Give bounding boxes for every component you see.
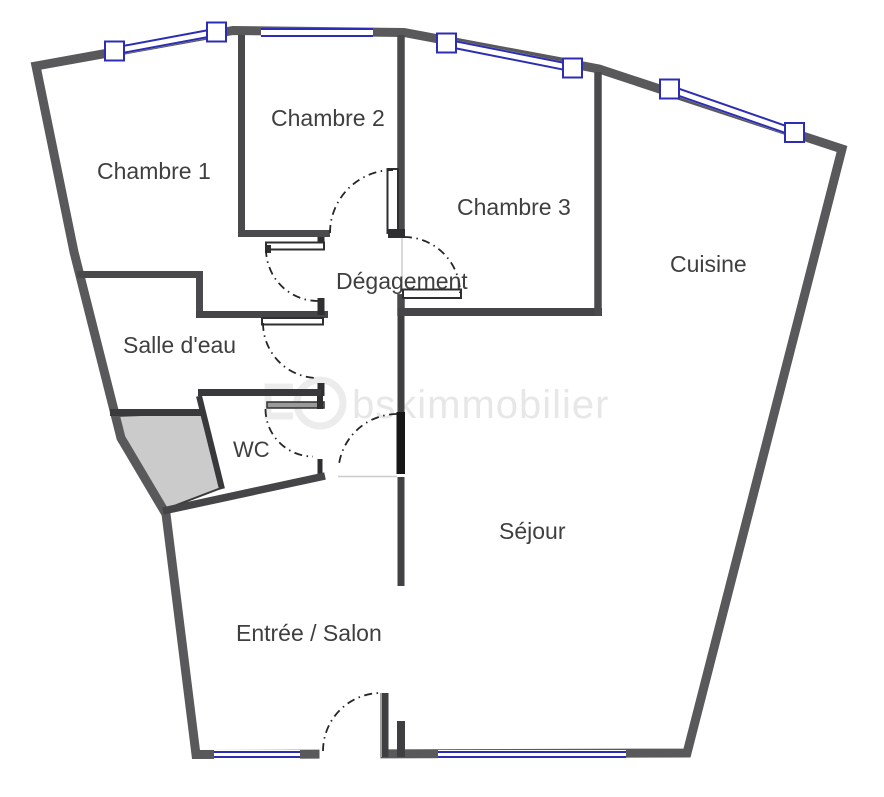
svg-text:WC: WC [233, 437, 270, 462]
svg-text:bskimmobilier: bskimmobilier [352, 383, 610, 427]
svg-text:Cuisine: Cuisine [670, 251, 747, 277]
svg-text:Entrée / Salon: Entrée / Salon [236, 620, 382, 646]
svg-text:Chambre 2: Chambre 2 [271, 105, 385, 131]
svg-text:Chambre 3: Chambre 3 [457, 194, 571, 220]
svg-text:Dégagement: Dégagement [336, 268, 468, 294]
svg-text:Salle d'eau: Salle d'eau [123, 332, 236, 358]
svg-text:Séjour: Séjour [499, 518, 566, 544]
svg-text:Chambre 1: Chambre 1 [97, 158, 211, 184]
